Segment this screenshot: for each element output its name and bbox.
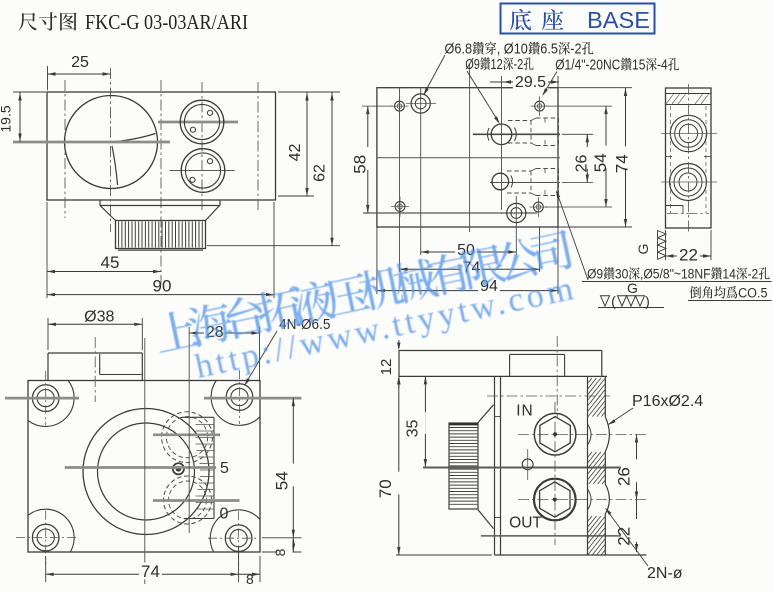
- svg-text:45: 45: [101, 253, 120, 272]
- svg-text:0: 0: [220, 506, 229, 523]
- svg-text:G: G: [627, 280, 638, 296]
- svg-text:35: 35: [405, 419, 422, 437]
- svg-text:26: 26: [615, 467, 634, 486]
- svg-text:OUT: OUT: [509, 515, 542, 532]
- svg-text:74: 74: [613, 154, 632, 173]
- svg-text:-2: -2: [748, 266, 759, 282]
- svg-text:62: 62: [312, 164, 329, 182]
- svg-text:Ø38: Ø38: [84, 309, 114, 326]
- svg-text:74: 74: [141, 562, 160, 581]
- svg-text:Ø1/4"-20NC: Ø1/4"-20NC: [555, 56, 620, 72]
- svg-text:-2: -2: [513, 55, 523, 72]
- svg-text:5: 5: [220, 460, 229, 477]
- svg-text:Ø9: Ø9: [465, 55, 480, 72]
- svg-text:-2: -2: [570, 41, 581, 57]
- svg-text:42: 42: [287, 144, 304, 162]
- svg-text:90: 90: [153, 277, 172, 296]
- svg-text:CO.5: CO.5: [738, 285, 767, 301]
- svg-text:-4: -4: [657, 56, 668, 72]
- svg-text:15: 15: [632, 56, 645, 72]
- svg-text:12: 12: [491, 55, 503, 72]
- svg-text:Ø6.8: Ø6.8: [445, 41, 473, 57]
- svg-text:58: 58: [350, 155, 369, 174]
- svg-text:8: 8: [272, 548, 288, 556]
- svg-text:29.5: 29.5: [515, 74, 546, 91]
- svg-text:Ø9: Ø9: [587, 266, 603, 282]
- svg-text:,Ø5/8"~18NF: ,Ø5/8"~18NF: [640, 266, 711, 282]
- svg-text:22: 22: [679, 246, 698, 265]
- svg-text:P16xØ2.4: P16xØ2.4: [632, 393, 703, 410]
- svg-text:19.5: 19.5: [0, 105, 14, 132]
- svg-text:54: 54: [273, 471, 292, 490]
- svg-text:2N-ø: 2N-ø: [647, 565, 683, 582]
- svg-text:14: 14: [722, 266, 735, 282]
- svg-text:70: 70: [376, 479, 395, 498]
- svg-text:12: 12: [378, 359, 395, 376]
- svg-text:8: 8: [246, 571, 254, 587]
- svg-text:FKC-G 03-03AR/ARI: FKC-G 03-03AR/ARI: [85, 10, 248, 34]
- svg-text:6.5: 6.5: [540, 41, 558, 57]
- svg-text:, Ø10: , Ø10: [497, 41, 529, 57]
- svg-text:BASE: BASE: [587, 7, 650, 33]
- svg-text:IN: IN: [516, 403, 534, 420]
- svg-text:(: (: [611, 293, 616, 309]
- svg-text:26: 26: [574, 154, 591, 172]
- svg-text:G: G: [635, 244, 651, 255]
- svg-text:54: 54: [591, 153, 610, 172]
- svg-text:25: 25: [71, 54, 89, 71]
- svg-text:): ): [645, 293, 650, 309]
